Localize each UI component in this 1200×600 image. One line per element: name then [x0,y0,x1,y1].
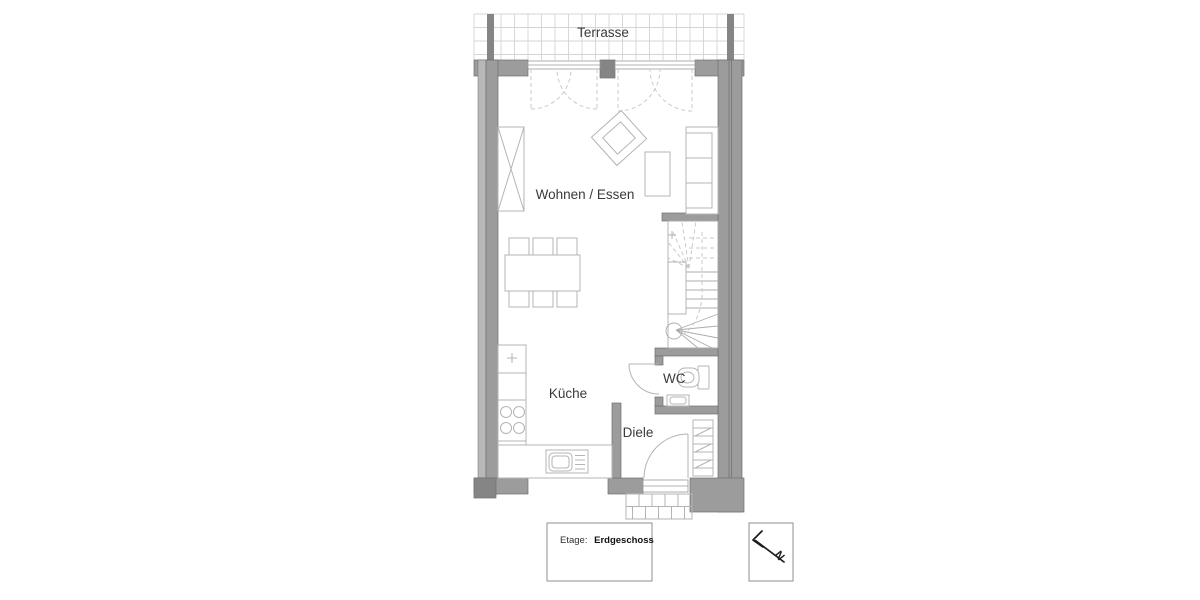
kitchen-label: Küche [549,386,587,401]
stairs-upper-treads [668,221,718,268]
svg-text:Etage: Erdgeschoss: Etage: Erdgeschoss [560,535,654,546]
dining-table [505,255,580,291]
terrace: Terrasse [474,14,744,60]
wc-top-wall [655,348,718,356]
dining-set [505,238,580,307]
wc-bottom-wall [655,406,718,414]
living-label: Wohnen / Essen [536,187,635,202]
stairs-cross-mark [668,231,676,239]
terrace-post-right [727,14,734,60]
terrace-door-left-swing [531,69,597,109]
left-wall-inner [486,60,498,494]
sofa [686,127,718,214]
bottom-wall-mid [608,478,643,494]
front-door [643,434,688,492]
bottom-wall-right [690,478,744,512]
stairs-walkline [684,232,702,334]
floor-name: Erdgeschoss [594,535,654,546]
stairs [666,221,718,348]
coffee-table [645,152,670,196]
hall-label: Diele [623,425,654,440]
floorplan-svg: Terrasse [0,0,1200,600]
dining-chair [509,238,529,257]
armchair [591,110,646,165]
terrace-door-right-swing [618,69,692,111]
stairs-lower-treads [676,272,718,348]
wardrobe [498,127,524,211]
kitchen-sink [546,450,588,473]
wc-label: WC [663,371,686,386]
floor-prefix: Etage: [560,535,587,546]
hall-radiator [693,420,713,476]
wc-door [629,364,659,394]
dining-chair [557,238,577,257]
bottom-wall-corner [474,478,496,498]
wc-room: WC [629,364,709,406]
floorplan-canvas: Terrasse [0,0,1200,600]
kitchen: Küche [498,345,612,478]
dining-chair [533,238,553,257]
terrace-label: Terrasse [577,25,629,40]
north-box: N [749,523,793,581]
floor-label-box: Etage: Erdgeschoss [547,523,654,581]
party-wall [718,60,742,512]
left-wall-outer [478,60,486,494]
wc-left-stub-lower [655,397,663,406]
top-wall-pillar [600,60,615,78]
living-room: Wohnen / Essen [498,110,718,307]
kitchen-hall-divider [612,403,621,478]
entrance-steps [626,494,692,519]
washbasin [667,395,689,406]
stairs-void [668,262,686,314]
terrace-post-left [487,14,494,60]
